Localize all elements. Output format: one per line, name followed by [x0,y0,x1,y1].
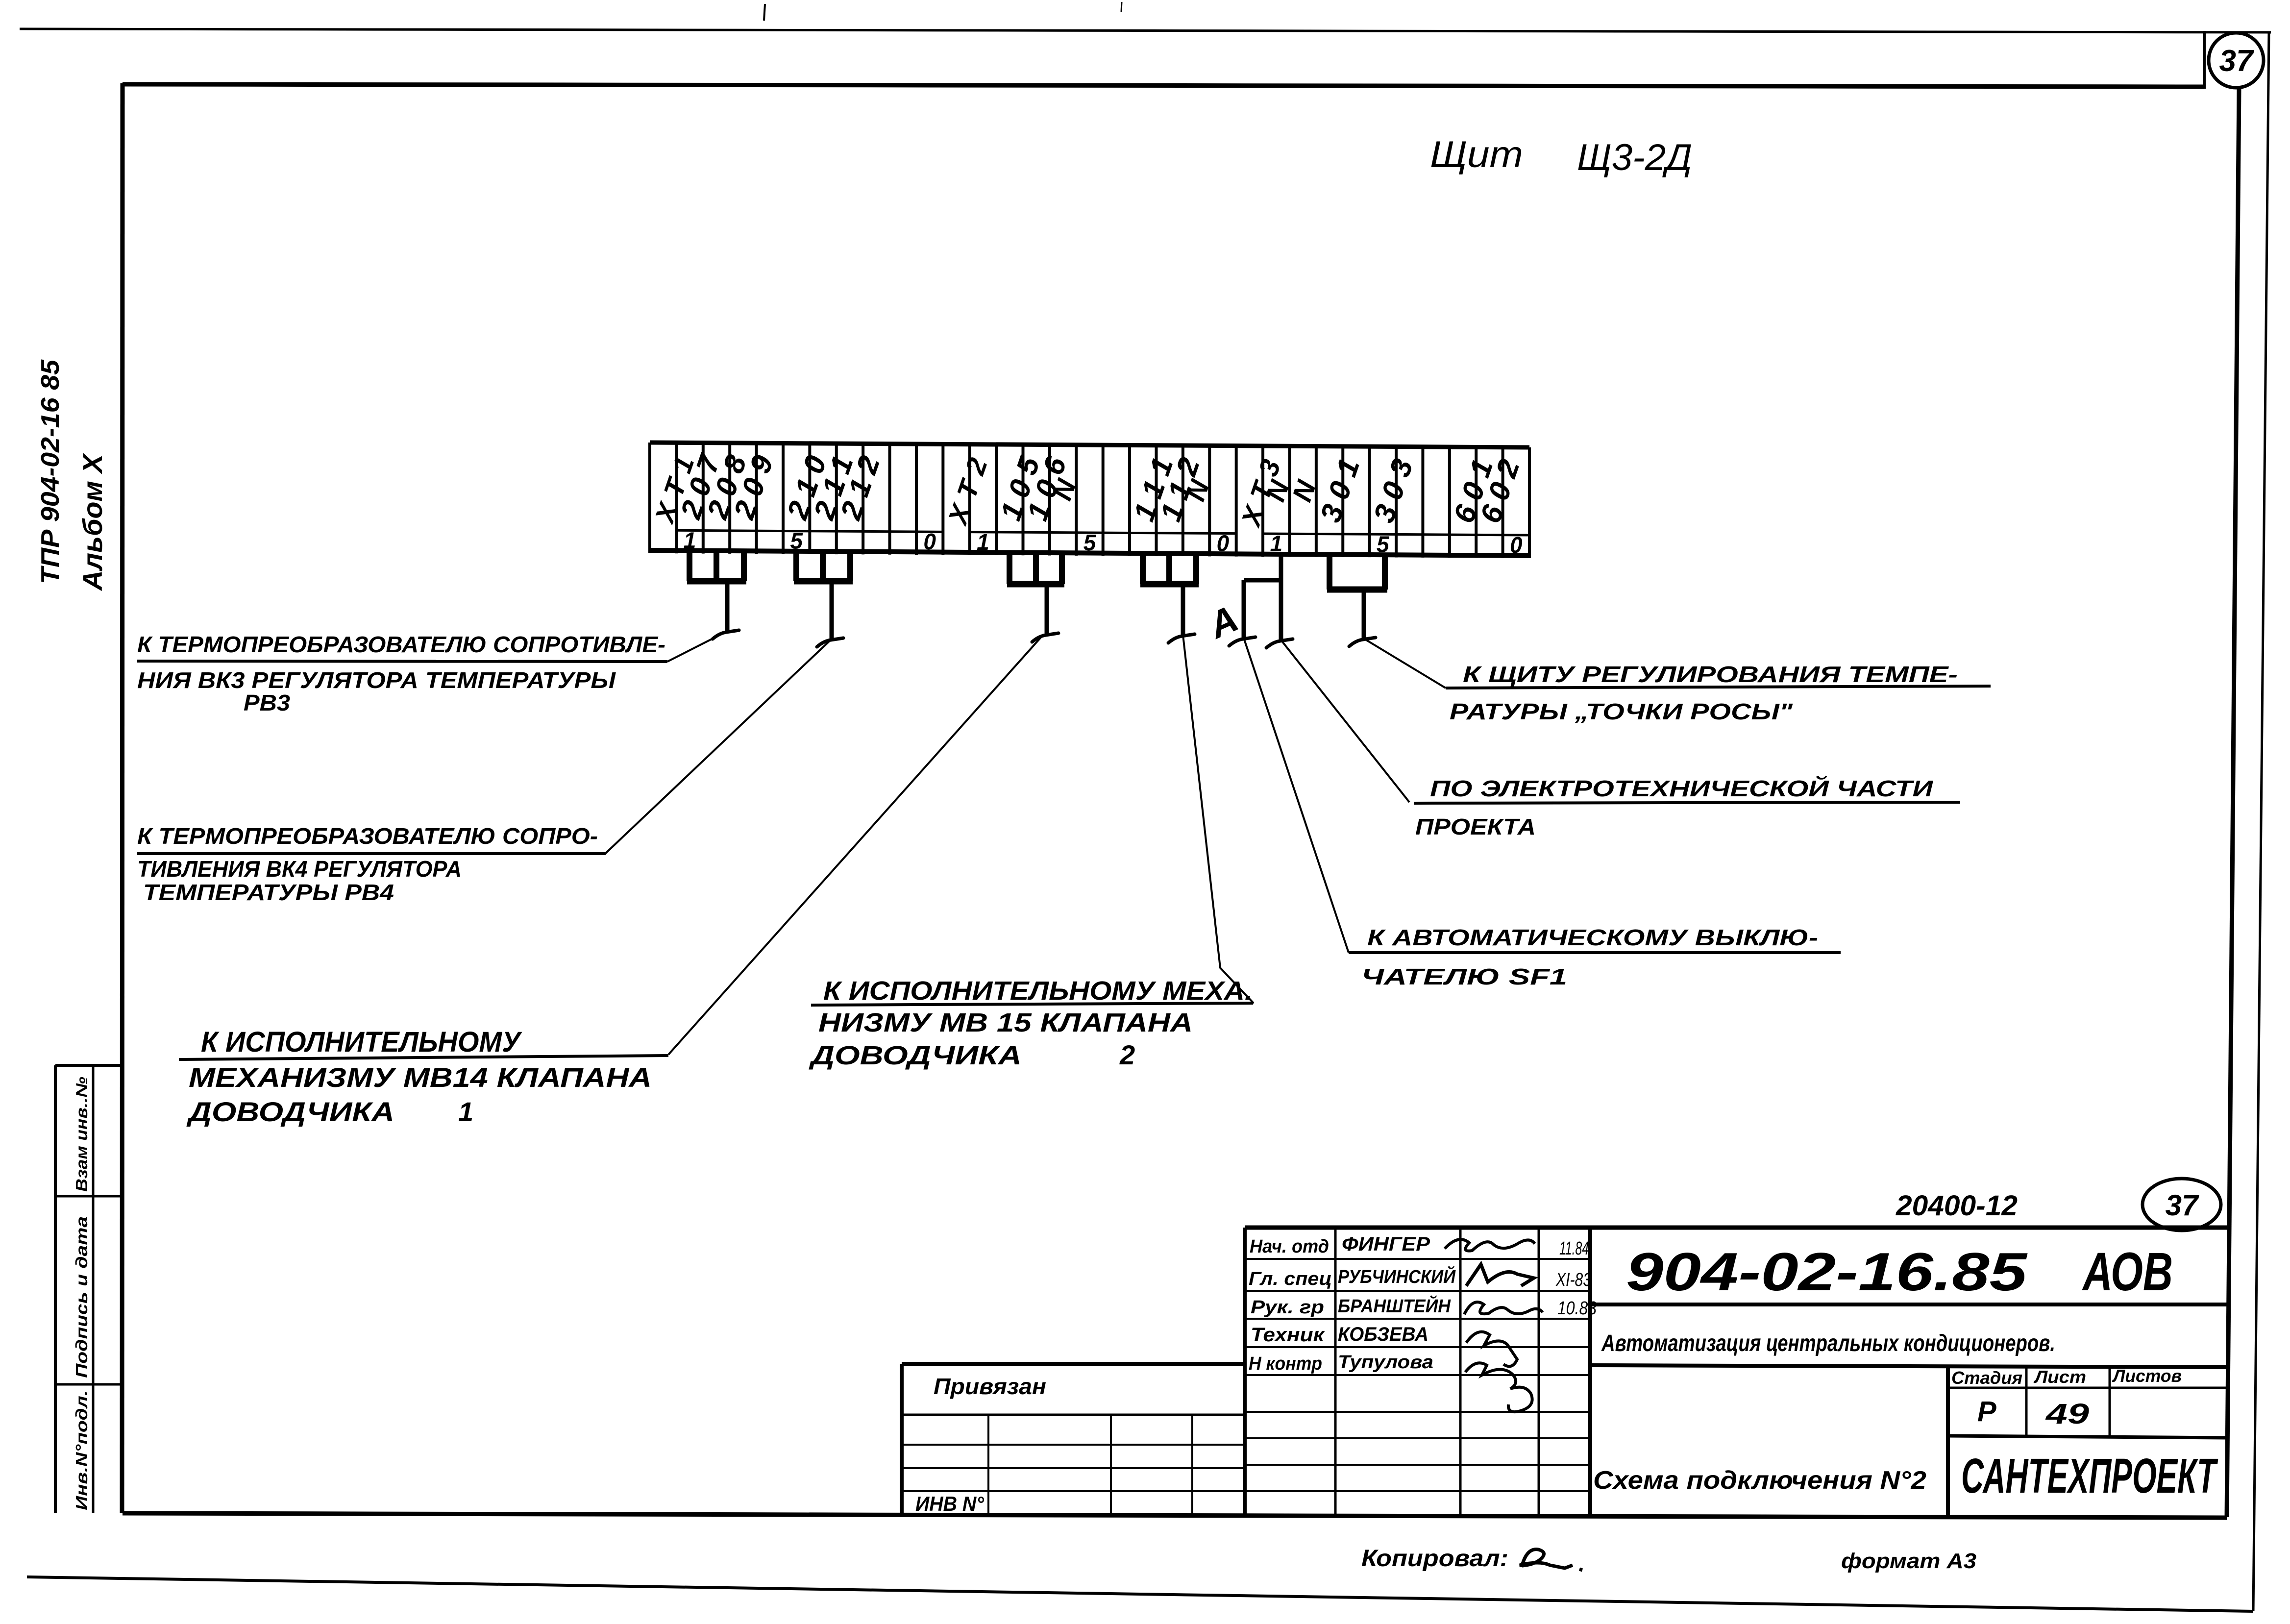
svg-text:НИЯ ВК3 РЕГУЛЯТОРА ТЕМПЕРАТУРЫ: НИЯ ВК3 РЕГУЛЯТОРА ТЕМПЕРАТУРЫ [137,667,616,693]
svg-text:ФИНГЕР: ФИНГЕР [1342,1233,1430,1255]
svg-text:Тупулова: Тупулова [1338,1352,1433,1373]
svg-text:К ИСПОЛНИТЕЛЬНОМУ МЕХА.: К ИСПОЛНИТЕЛЬНОМУ МЕХА. [823,976,1253,1006]
svg-text:БРАНШТЕЙН: БРАНШТЕЙН [1338,1295,1451,1317]
svg-text:ДОВОДЧИКА: ДОВОДЧИКА [186,1096,394,1127]
svg-text:2: 2 [1119,1039,1135,1070]
svg-text:XI-83: XI-83 [1555,1270,1591,1290]
svg-text:11.84: 11.84 [1559,1238,1589,1259]
svg-text:МЕХАНИЗМУ МВ14 КЛАПАНА: МЕХАНИЗМУ МВ14 КЛАПАНА [189,1062,652,1093]
svg-text:1: 1 [458,1096,473,1127]
svg-text:1: 1 [977,529,989,555]
svg-text:0: 0 [1510,532,1523,558]
svg-text:5: 5 [1377,531,1390,557]
svg-text:49: 49 [2045,1398,2089,1430]
svg-text:5: 5 [790,528,803,554]
svg-text:К ТЕРМОПРЕОБРАЗОВАТЕЛЮ СОПРО-: К ТЕРМОПРЕОБРАЗОВАТЕЛЮ СОПРО- [137,823,598,849]
svg-text:0: 0 [923,529,936,554]
svg-text:К АВТОМАТИЧЕСКОМУ ВЫКЛЮ-: К АВТОМАТИЧЕСКОМУ ВЫКЛЮ- [1367,925,1818,950]
svg-text:37: 37 [2166,1189,2199,1222]
svg-text:НИЗМУ МВ 15 КЛАПАНА: НИЗМУ МВ 15 КЛАПАНА [818,1008,1193,1037]
svg-text:Лист: Лист [2033,1367,2086,1387]
svg-text:Подпись и дата: Подпись и дата [73,1216,91,1378]
svg-text:Взам инв..№: Взам инв..№ [73,1077,91,1192]
svg-text:Схема подключения N°2: Схема подключения N°2 [1593,1466,1926,1495]
svg-text:ЧАТЕЛЮ SF1: ЧАТЕЛЮ SF1 [1361,964,1567,989]
svg-text:САНТЕХПРОЕКТ: САНТЕХПРОЕКТ [1961,1449,2218,1503]
svg-text:Нач. отд: Нач. отд [1250,1236,1329,1257]
svg-text:Щит: Щит [1430,134,1523,175]
svg-text:Инв.N°подл.: Инв.N°подл. [73,1390,91,1510]
svg-text:ИНВ N°: ИНВ N° [915,1492,985,1515]
svg-text:ПО ЭЛЕКТРОТЕХНИЧЕСКОЙ ЧАСТИ: ПО ЭЛЕКТРОТЕХНИЧЕСКОЙ ЧАСТИ [1430,776,1933,801]
svg-text:ТИВЛЕНИЯ ВК4 РЕГУЛЯТОРА: ТИВЛЕНИЯ ВК4 РЕГУЛЯТОРА [137,856,462,882]
svg-text:Автоматизация центральных конд: Автоматизация центральных кондиционеров. [1601,1330,2055,1356]
svg-text:Н контр: Н контр [1249,1353,1322,1374]
svg-text:ТЕМПЕРАТУРЫ РВ4: ТЕМПЕРАТУРЫ РВ4 [143,880,394,905]
svg-text:20400-12: 20400-12 [1896,1190,2018,1222]
svg-text:К ЩИТУ РЕГУЛИРОВАНИЯ ТЕМПЕ-: К ЩИТУ РЕГУЛИРОВАНИЯ ТЕМПЕ- [1463,662,1958,687]
svg-text:Листов: Листов [2112,1366,2182,1386]
svg-text:37: 37 [2219,44,2254,78]
svg-text:0: 0 [1217,531,1230,556]
svg-text:КОБЗЕВА: КОБЗЕВА [1338,1324,1428,1345]
svg-text:К ТЕРМОПРЕОБРАЗОВАТЕЛЮ СОПРОТИ: К ТЕРМОПРЕОБРАЗОВАТЕЛЮ СОПРОТИВЛЕ- [137,632,665,657]
svg-text:формат А3: формат А3 [1841,1549,1976,1573]
svg-text:РВ3: РВ3 [244,690,290,715]
svg-text:К ИСПОЛНИТЕЛЬНОМУ: К ИСПОЛНИТЕЛЬНОМУ [201,1026,522,1058]
svg-text:1: 1 [1270,531,1282,556]
svg-text:5: 5 [1083,530,1097,555]
svg-text:10.83: 10.83 [1557,1298,1597,1319]
svg-text:Техник: Техник [1251,1324,1325,1346]
svg-text:1: 1 [684,527,696,553]
svg-text:904-02-16.85: 904-02-16.85 [1626,1242,2028,1302]
svg-text:ДОВОДЧИКА: ДОВОДЧИКА [809,1041,1022,1070]
svg-text:Щ3-2Д: Щ3-2Д [1577,137,1692,178]
svg-text:ТПР 904-02-16 85: ТПР 904-02-16 85 [36,359,65,584]
svg-text:Привязан: Привязан [934,1374,1046,1399]
svg-text:Гл. спец: Гл. спец [1249,1269,1332,1289]
svg-text:РАТУРЫ „ТОЧКИ РОСЫ": РАТУРЫ „ТОЧКИ РОСЫ" [1450,699,1793,724]
svg-text:АОВ: АОВ [2082,1242,2173,1302]
svg-text:РУБЧИНСКИЙ: РУБЧИНСКИЙ [1338,1265,1456,1287]
svg-text:Стадия: Стадия [1951,1368,2022,1388]
svg-text:Рук. гр: Рук. гр [1251,1297,1324,1318]
svg-text:Альбом Х: Альбом Х [77,452,108,591]
svg-text:Р: Р [1977,1396,1996,1427]
svg-text:ПРОЕКТА: ПРОЕКТА [1415,814,1536,839]
svg-text:Копировал:: Копировал: [1361,1546,1508,1572]
